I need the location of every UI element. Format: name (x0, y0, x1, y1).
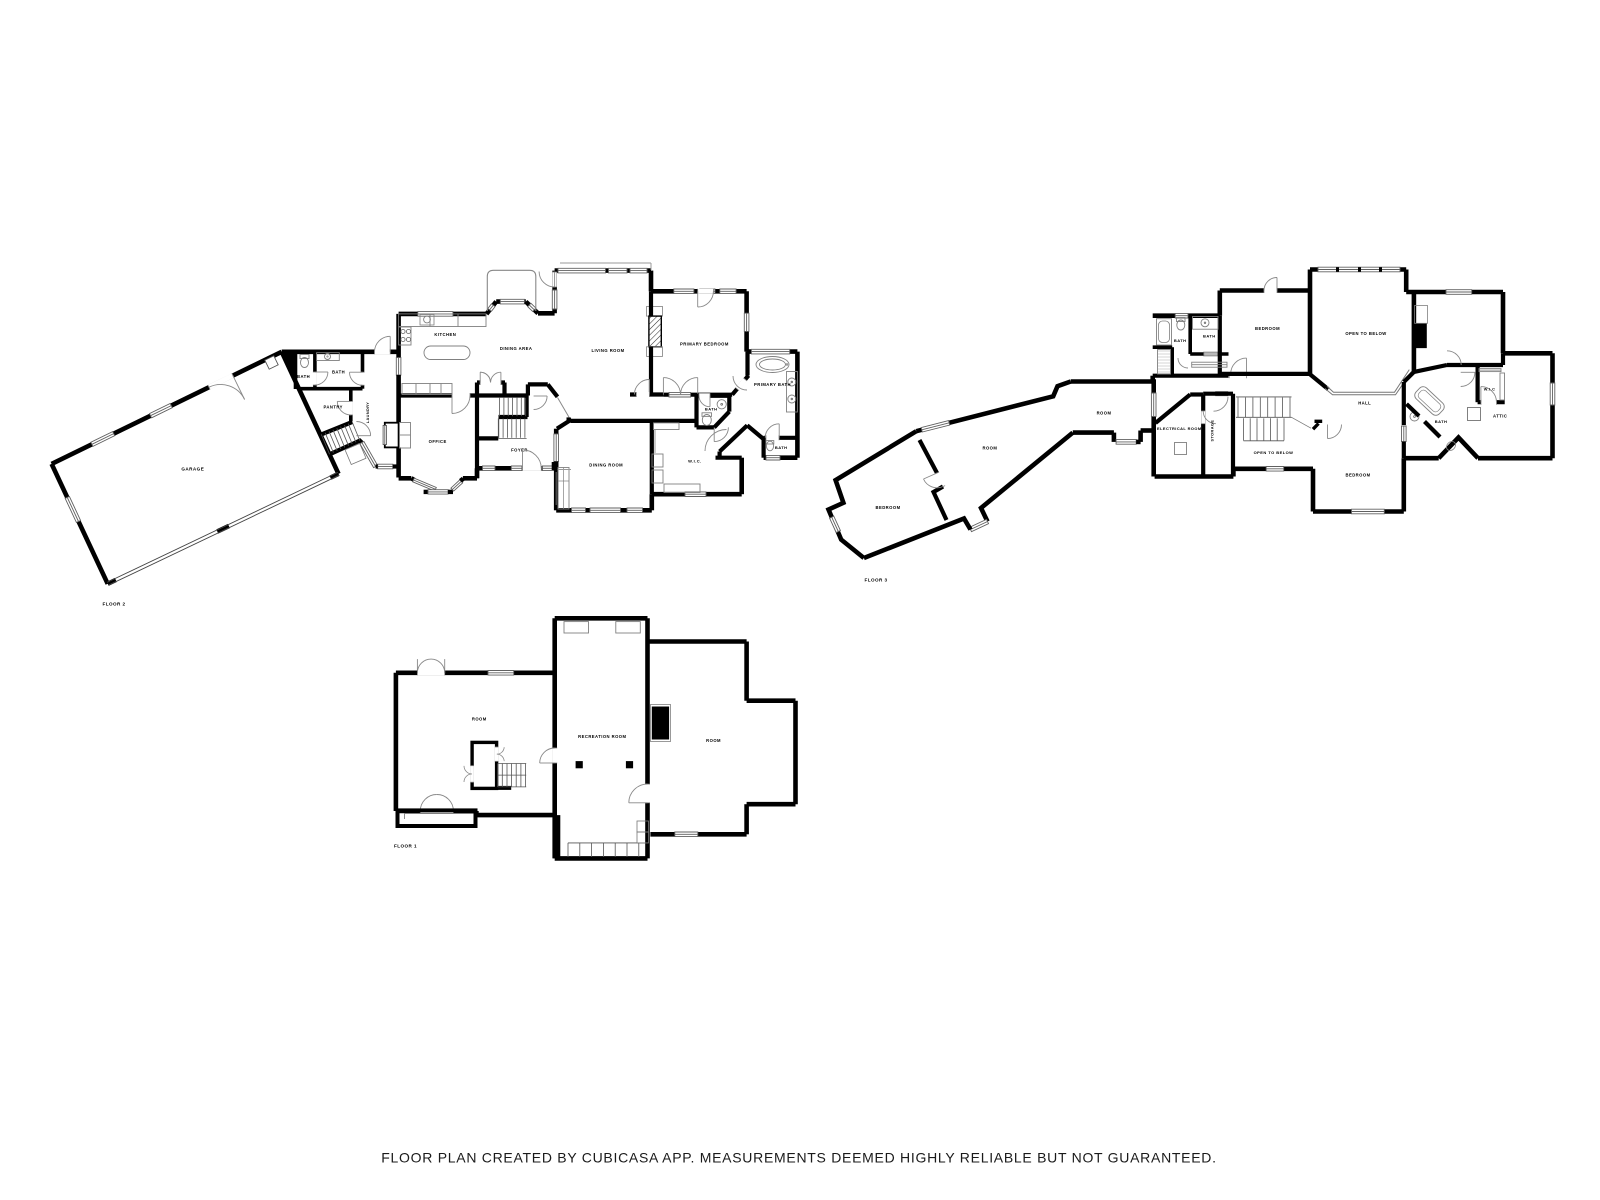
svg-text:DINING AREA: DINING AREA (500, 346, 532, 351)
svg-text:BATH: BATH (705, 407, 718, 412)
svg-text:OPEN TO BELOW: OPEN TO BELOW (1254, 450, 1294, 455)
svg-text:HALL: HALL (1358, 401, 1371, 406)
svg-text:BATH: BATH (1203, 334, 1216, 339)
svg-text:W.I.C: W.I.C (1484, 388, 1496, 392)
svg-text:BATH: BATH (332, 369, 345, 374)
svg-text:LIVING ROOM: LIVING ROOM (591, 348, 624, 353)
svg-text:GARAGE: GARAGE (181, 466, 204, 471)
svg-text:LAUNDRY: LAUNDRY (366, 402, 370, 424)
svg-text:FLOOR 2: FLOOR 2 (102, 602, 125, 607)
svg-text:PRIMARY BATH: PRIMARY BATH (754, 382, 791, 387)
svg-text:OPEN TO BELOW: OPEN TO BELOW (1345, 331, 1386, 336)
svg-text:KITCHEN: KITCHEN (434, 332, 456, 337)
svg-text:ELECTRICAL ROOM: ELECTRICAL ROOM (1157, 426, 1202, 431)
svg-text:OFFICE: OFFICE (429, 439, 447, 444)
svg-text:W.I.C.: W.I.C. (688, 458, 702, 463)
svg-text:ATTIC: ATTIC (1493, 413, 1507, 418)
svg-text:RECREATION ROOM: RECREATION ROOM (578, 734, 626, 739)
svg-text:BEDROOM: BEDROOM (1255, 326, 1280, 331)
svg-text:ROOM: ROOM (982, 446, 997, 451)
svg-text:BEDROOM: BEDROOM (875, 505, 900, 510)
svg-text:BATH: BATH (1174, 338, 1187, 343)
svg-text:FLOOR PLAN CREATED BY CUBICASA: FLOOR PLAN CREATED BY CUBICASA APP. MEAS… (381, 1150, 1216, 1166)
svg-text:ROOM: ROOM (472, 717, 487, 722)
svg-text:DINING ROOM: DINING ROOM (589, 462, 623, 467)
svg-text:BEDROOM: BEDROOM (1345, 473, 1370, 478)
svg-text:PANTRY: PANTRY (323, 405, 342, 410)
svg-text:FLOOR 3: FLOOR 3 (864, 578, 887, 583)
svg-text:ROOM: ROOM (1097, 410, 1112, 415)
svg-text:BATH: BATH (297, 374, 310, 379)
svg-text:STORAGE: STORAGE (1211, 420, 1215, 442)
svg-text:BATH: BATH (1435, 419, 1448, 424)
svg-text:ROOM: ROOM (706, 738, 721, 743)
svg-text:FLOOR 1: FLOOR 1 (394, 844, 417, 849)
svg-text:BATH: BATH (775, 445, 788, 450)
svg-text:PRIMARY BEDROOM: PRIMARY BEDROOM (680, 342, 729, 347)
